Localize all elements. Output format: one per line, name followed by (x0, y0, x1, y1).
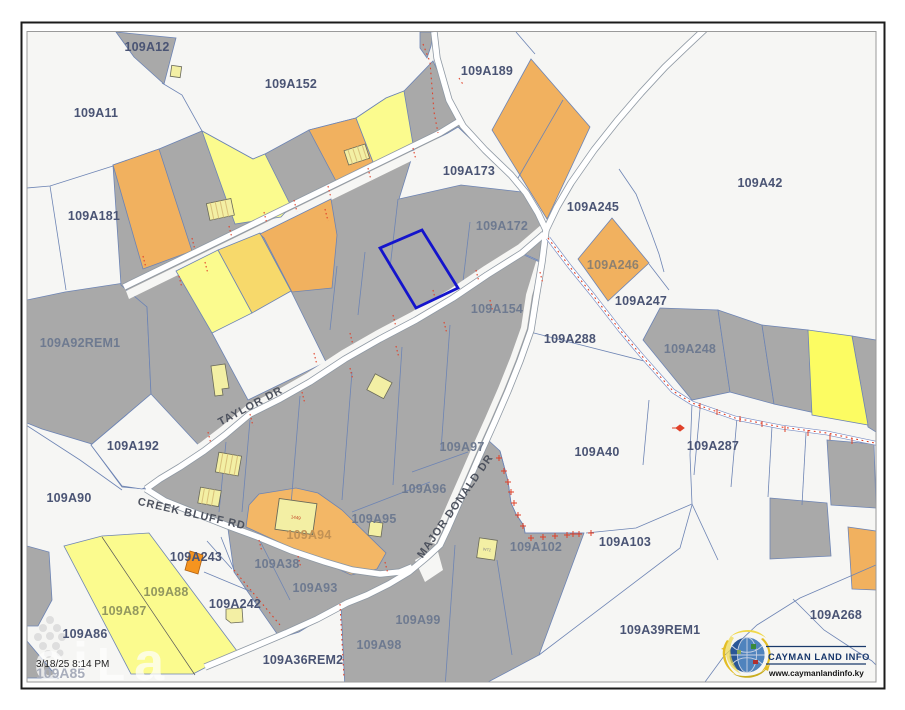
svg-text:109A287: 109A287 (687, 439, 739, 453)
svg-text:109A99: 109A99 (396, 613, 441, 627)
svg-text:109A38: 109A38 (255, 557, 300, 571)
svg-text:109A243: 109A243 (170, 550, 222, 564)
svg-text:109A96: 109A96 (402, 482, 447, 496)
svg-text:109A94: 109A94 (287, 528, 332, 542)
svg-text:109A172: 109A172 (476, 219, 528, 233)
svg-text:109A42: 109A42 (738, 176, 783, 190)
svg-text:109A288: 109A288 (544, 332, 596, 346)
svg-text:109A88: 109A88 (144, 585, 189, 599)
svg-text:109A93: 109A93 (293, 581, 338, 595)
svg-text:109A12: 109A12 (125, 40, 170, 54)
svg-text:109A246: 109A246 (587, 258, 639, 272)
svg-text:www.caymanlandinfo.ky: www.caymanlandinfo.ky (768, 669, 864, 678)
svg-text:109A36REM2: 109A36REM2 (263, 653, 344, 667)
svg-text:109A95: 109A95 (352, 512, 397, 526)
svg-text:109A90: 109A90 (47, 491, 92, 505)
svg-text:109A97: 109A97 (440, 440, 485, 454)
svg-text:109A40: 109A40 (575, 445, 620, 459)
svg-text:109A181: 109A181 (68, 209, 120, 223)
svg-text:109A152: 109A152 (265, 77, 317, 91)
svg-text:109A39REM1: 109A39REM1 (620, 623, 701, 637)
svg-text:109A87: 109A87 (102, 604, 147, 618)
svg-text:109A245: 109A245 (567, 200, 619, 214)
svg-text:109A11: 109A11 (74, 106, 118, 120)
svg-text:109A268: 109A268 (810, 608, 862, 622)
svg-text:109A102: 109A102 (510, 540, 562, 554)
svg-text:109A192: 109A192 (107, 439, 159, 453)
svg-text:109A248: 109A248 (664, 342, 716, 356)
svg-text:109A154: 109A154 (471, 302, 523, 316)
svg-text:109A103: 109A103 (599, 535, 651, 549)
svg-text:109A92REM1: 109A92REM1 (40, 336, 121, 350)
svg-text:109A173: 109A173 (443, 164, 495, 178)
svg-text:CAYMAN LAND INFO: CAYMAN LAND INFO (768, 652, 870, 662)
svg-text:109A86: 109A86 (63, 627, 108, 641)
svg-text:3/18/25 8:14 PM: 3/18/25 8:14 PM (36, 659, 109, 670)
svg-text:109A247: 109A247 (615, 294, 667, 308)
svg-text:109A189: 109A189 (461, 64, 513, 78)
svg-text:109A98: 109A98 (357, 638, 402, 652)
svg-text:109A242: 109A242 (209, 597, 261, 611)
